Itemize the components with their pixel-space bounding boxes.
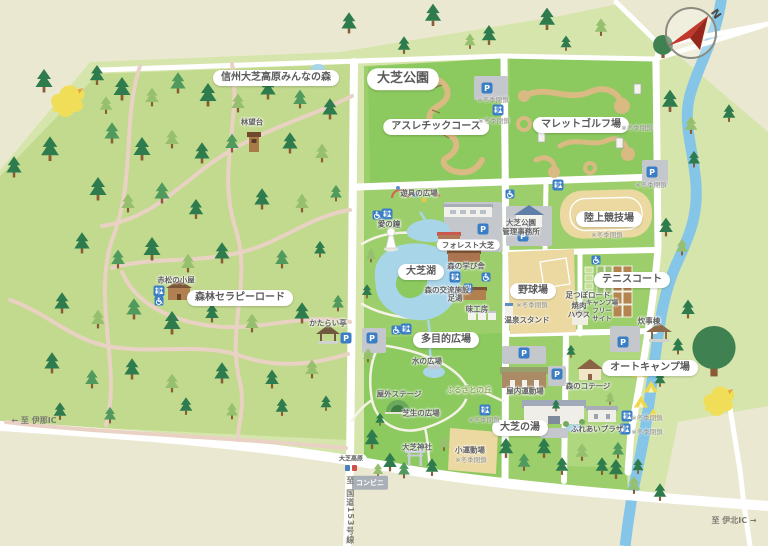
- label-oshiba-no-yu: 大芝の湯: [492, 420, 548, 436]
- label-camp-free-site: キャンプ場 フリー サイト: [586, 299, 618, 322]
- label-oshiba-park: 大芝公園: [367, 68, 439, 90]
- label-park-office: 大芝公園 管理事務所: [502, 218, 540, 236]
- label-playground-plaza: 遊具の広場: [400, 189, 438, 198]
- road-label-to-ina-ic: ← 至 伊那IC: [11, 416, 56, 426]
- label-furusato-hill: ふるさとの丘: [447, 386, 492, 395]
- label-athletics-stadium: 陸上競技場: [576, 211, 642, 227]
- label-bus-stop-oshiba-kogen: 大芝高原: [335, 454, 367, 463]
- winter-closure-note: ※冬季閉鎖: [477, 94, 508, 104]
- label-lawn-plaza: 芝生の広場: [402, 409, 440, 418]
- label-forest-therapy-road: 森林セラピーロード: [187, 290, 293, 306]
- label-auto-camp: オートキャンプ場: [602, 360, 698, 376]
- label-onsen-stand: 温泉スタンド: [505, 316, 550, 325]
- label-aji-kobo: 味工房: [466, 305, 489, 314]
- label-mori-no-manabiya: 森の学び舎: [447, 262, 485, 271]
- label-katarai-tei: かたらい亭: [309, 319, 347, 328]
- winter-closure-note: ※冬季閉鎖: [455, 454, 486, 464]
- road-label-to-route-153: 至 国道153号線 ↓: [345, 476, 355, 546]
- label-athletic-course: アスレチックコース: [383, 119, 489, 135]
- label-multipurpose-plaza: 多目的広場: [413, 332, 479, 348]
- road-label-to-ihoku-ic: 至 伊北IC →: [711, 516, 756, 526]
- label-tennis-court: テニスコート: [594, 272, 670, 288]
- winter-closure-note: ※冬季閉鎖: [478, 115, 509, 125]
- label-oshiba-shrine: 大芝神社: [402, 443, 432, 452]
- label-rinbodai: 林望台: [241, 118, 264, 127]
- winter-closure-note: ※冬季閉鎖: [591, 229, 622, 239]
- winter-closure-note: ※冬季閉鎖: [468, 414, 499, 424]
- label-mizu-no-hiroba: 水の広場: [412, 357, 442, 366]
- label-baseball-field: 野球場: [510, 283, 556, 299]
- label-convenience-store: コンビニ: [352, 476, 388, 490]
- label-forest-oshiba: フォレスト大芝: [437, 240, 500, 251]
- label-fureai-plaza: ふれあいプラザ: [571, 425, 624, 434]
- label-outdoor-stage: 屋外ステージ: [377, 390, 422, 399]
- winter-closure-note: ※冬季閉鎖: [631, 412, 662, 422]
- park-map: P: [0, 0, 768, 546]
- winter-closure-note: ※冬季閉鎖: [635, 179, 666, 189]
- label-minna-no-mori: 信州大芝高原みんなの森: [213, 70, 339, 86]
- label-indoor-gym: 屋内運動場: [506, 387, 544, 396]
- winter-closure-note: ※冬季閉鎖: [621, 122, 652, 132]
- winter-closure-note: ※冬季閉鎖: [631, 426, 662, 436]
- label-ashiyu: 足湯: [448, 294, 463, 303]
- label-forest-cottage: 森のコテージ: [566, 382, 611, 391]
- winter-closure-note: ※冬季閉鎖: [516, 299, 547, 309]
- label-akamatsu-cabin: 赤松の小屋: [157, 276, 195, 285]
- label-oshiba-lake: 大芝湖: [398, 264, 444, 280]
- label-bell-of-love: 愛の鐘: [378, 220, 401, 229]
- label-overlay: 信州大芝高原みんなの森 大芝公園 アスレチックコース マレットゴルフ場 森林セラ…: [0, 0, 768, 546]
- label-mallet-golf: マレットゴルフ場: [533, 117, 629, 133]
- label-cooking-building: 炊事棟: [638, 317, 661, 326]
